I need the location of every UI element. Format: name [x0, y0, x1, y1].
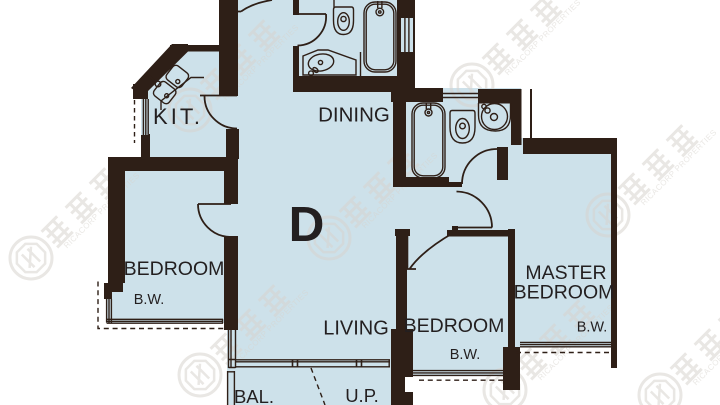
- svg-text:DINING: DINING: [318, 104, 390, 127]
- svg-text:BAL.: BAL.: [234, 386, 274, 405]
- svg-text:BEDROOM: BEDROOM: [124, 258, 225, 280]
- svg-text:KIT.: KIT.: [153, 104, 203, 129]
- svg-text:BEDROOM: BEDROOM: [404, 315, 505, 337]
- svg-text:B.W.: B.W.: [577, 320, 608, 336]
- svg-text:BEDROOM: BEDROOM: [514, 282, 615, 304]
- svg-text:LIVING: LIVING: [323, 318, 389, 340]
- svg-text:B.W.: B.W.: [450, 347, 481, 363]
- svg-text:B.W.: B.W.: [134, 292, 165, 308]
- svg-text:D: D: [289, 197, 325, 252]
- svg-text:U.P.: U.P.: [345, 385, 379, 405]
